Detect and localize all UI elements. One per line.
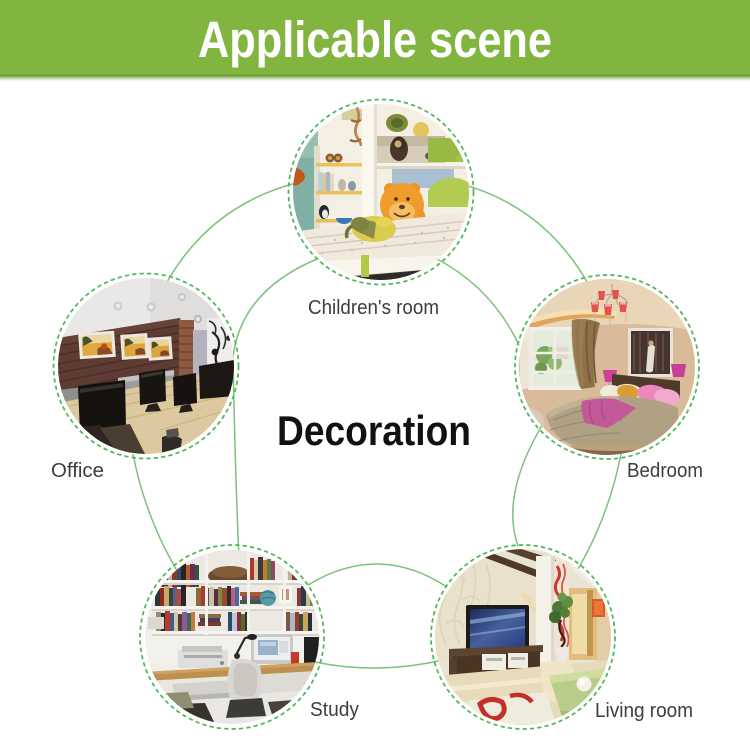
svg-text:Living room: Living room — [595, 700, 693, 722]
svg-text:Children's room: Children's room — [308, 297, 439, 319]
svg-text:Applicable scene: Applicable scene — [198, 11, 552, 68]
svg-text:Decoration: Decoration — [277, 407, 471, 454]
svg-text:Study: Study — [310, 698, 360, 721]
svg-text:Office: Office — [51, 459, 104, 482]
svg-text:Bedroom: Bedroom — [627, 459, 703, 482]
